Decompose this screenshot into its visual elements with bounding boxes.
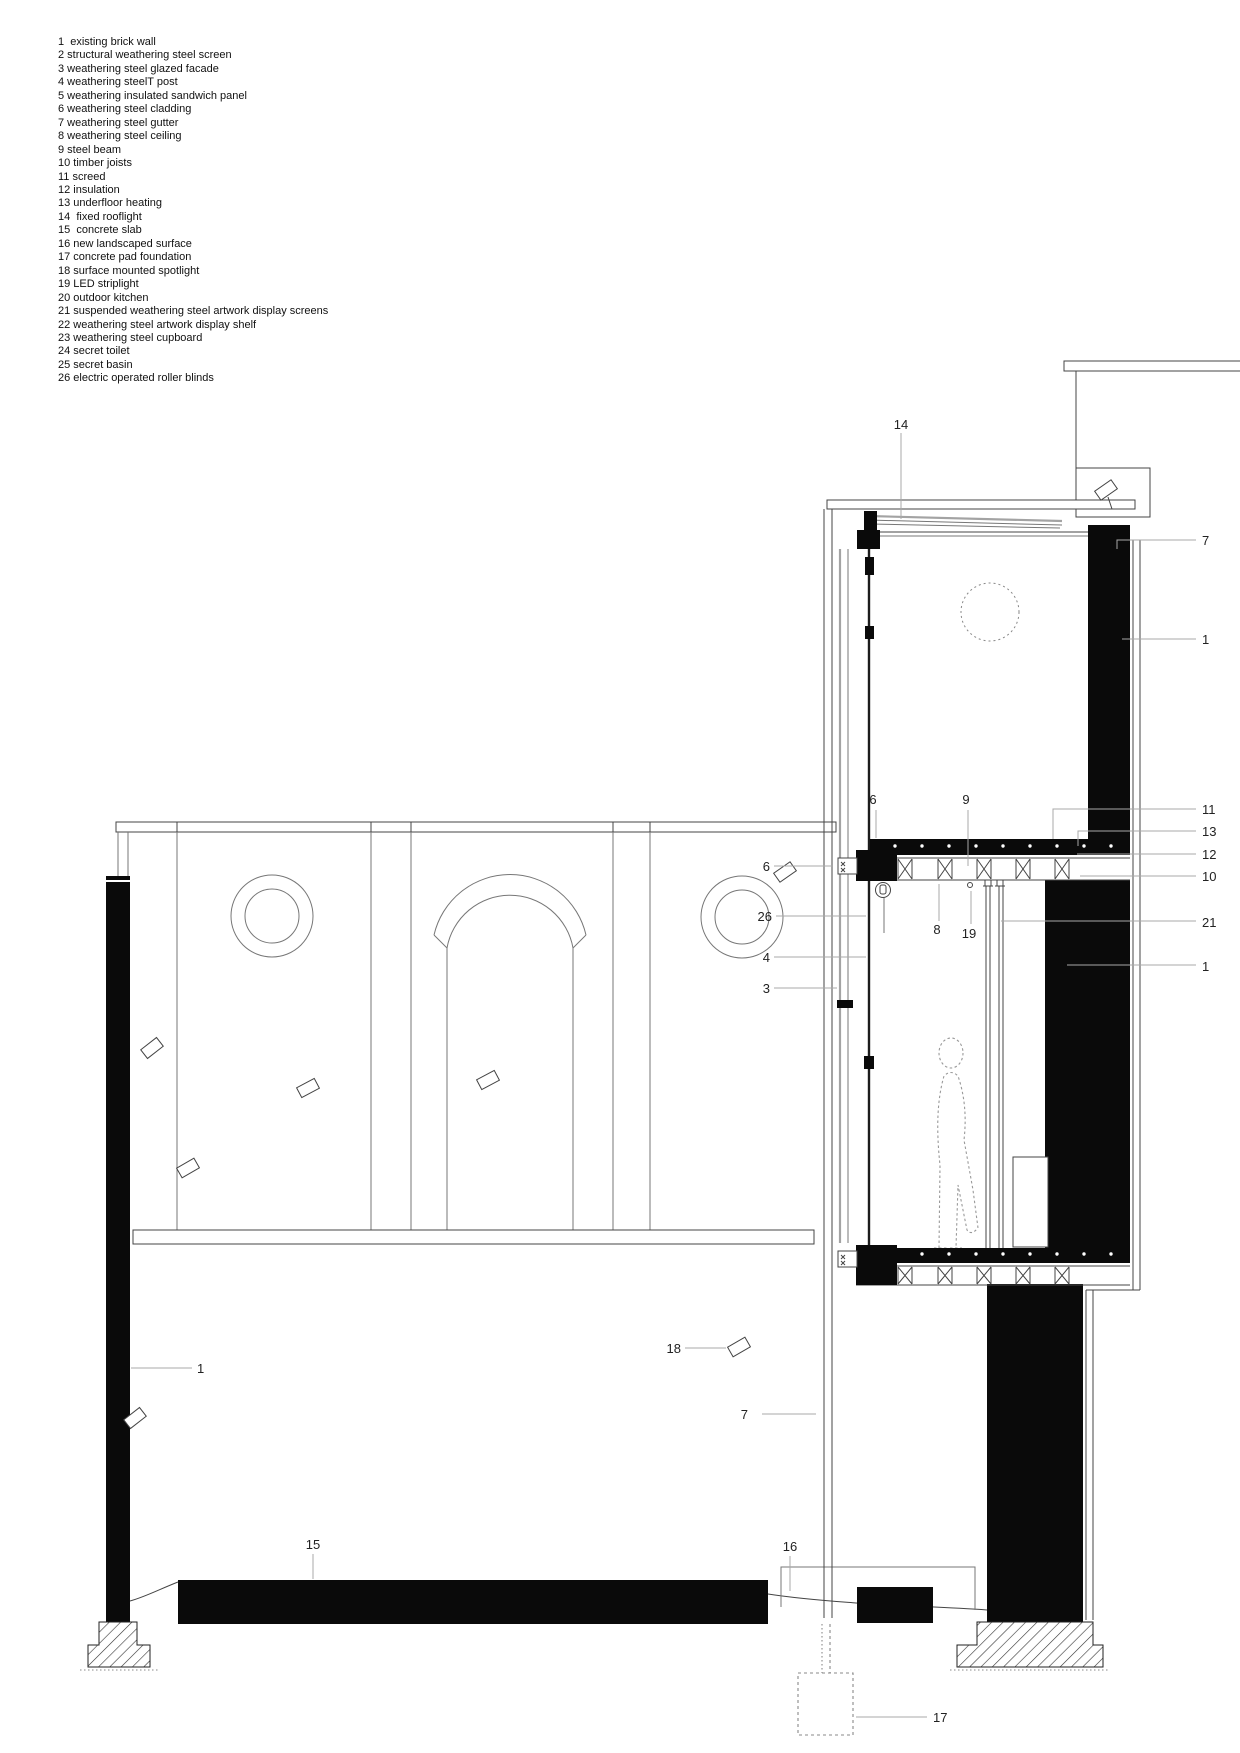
callout-15: 15 (306, 1537, 320, 1552)
screed-layer (870, 839, 1130, 855)
left-gallery-elevation (116, 822, 836, 1244)
callout-7-top: 7 (1202, 533, 1209, 548)
arched-opening (434, 875, 586, 1230)
callout-16: 16 (783, 1539, 797, 1554)
timber-joists (898, 859, 1069, 879)
upper-coping (1064, 361, 1240, 371)
spotlight-icon (141, 1038, 164, 1059)
spotlight-icon (477, 1070, 500, 1089)
callout-9: 9 (962, 792, 969, 807)
steel-t-post (837, 1000, 853, 1008)
spotlight-icon (177, 1158, 200, 1178)
ground-and-slab (130, 1567, 987, 1735)
callout-18: 18 (667, 1341, 681, 1356)
callout-8: 8 (933, 922, 940, 937)
callout-6-floor: 6 (869, 792, 876, 807)
wall-joint-lines (177, 832, 650, 1230)
roller-blind-housing (876, 883, 891, 934)
tower (824, 361, 1240, 1670)
led-striplight-dot (968, 883, 973, 888)
callout-14: 14 (894, 417, 908, 432)
callout-21: 21 (1202, 915, 1216, 930)
wall-coping (116, 822, 836, 832)
callout-3: 3 (763, 981, 770, 996)
person-figure (934, 1038, 978, 1248)
section-drawing: 14 7 1 6 9 11 13 12 10 21 1 (0, 0, 1240, 1753)
callout-1-top: 1 (1202, 632, 1209, 647)
spotlight-icon (297, 1078, 320, 1097)
display-shelf-recess (1013, 1157, 1048, 1247)
callout-7-bottom: 7 (741, 1407, 748, 1422)
facade-outer-and-downpipe (824, 509, 832, 1618)
section-drawing-page: 1 existing brick wall 2 structural weath… (0, 0, 1240, 1753)
pad-foundation (798, 1673, 853, 1735)
callout-10: 10 (1202, 869, 1216, 884)
callout-11: 11 (1202, 802, 1216, 817)
tower-footing (957, 1622, 1103, 1667)
callout-4: 4 (763, 950, 770, 965)
tower-brick-wall (950, 525, 1140, 1670)
callout-12: 12 (1202, 847, 1216, 862)
callout-17: 17 (933, 1710, 947, 1725)
spotlight-icon (728, 1337, 751, 1357)
callout-1-mid: 1 (1202, 959, 1209, 974)
lower-floor-buildup (838, 1245, 1130, 1285)
callout-13: 13 (1202, 824, 1216, 839)
ground-beam (857, 1587, 933, 1623)
suspended-display-screens (983, 880, 1005, 1248)
parapet-cap (827, 500, 1135, 509)
spotlight-icon (774, 862, 797, 882)
glazed-facade (837, 549, 874, 1246)
floor-edge-steel (856, 850, 897, 881)
left-brick-wall-section (80, 832, 160, 1670)
callout-1-left: 1 (197, 1361, 204, 1376)
spotlights (124, 480, 1118, 1429)
facade-head-detail (857, 530, 880, 549)
floor-edge-band (133, 1230, 814, 1244)
brick-wall-fill (106, 876, 130, 1622)
rooftop-box (1076, 468, 1150, 517)
callout-6-wall: 6 (763, 859, 770, 874)
wall-footing (88, 1622, 150, 1667)
dashed-circle-marker (961, 583, 1019, 641)
callout-19: 19 (962, 926, 976, 941)
callout-26: 26 (758, 909, 772, 924)
concrete-slab (178, 1580, 768, 1624)
porthole-window (231, 875, 313, 957)
ground-line (130, 1582, 178, 1601)
